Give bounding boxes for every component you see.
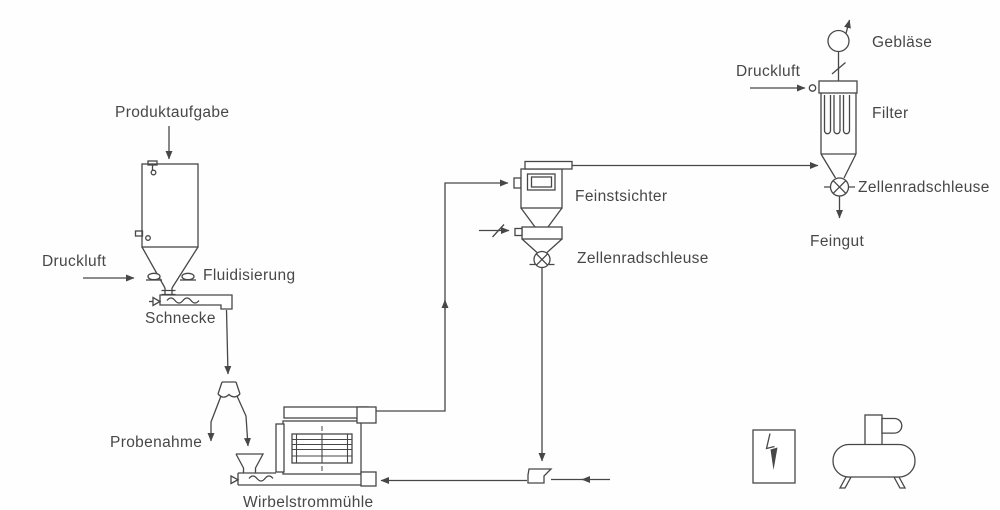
- mill-feed-squiggle: [249, 476, 273, 481]
- filter-head: [819, 81, 857, 93]
- flow-sheet-page: Produktaufgabe Druckluft Fluidisierung S…: [0, 0, 1000, 510]
- label-probenahme: Probenahme: [110, 434, 202, 451]
- screw-housing: [160, 295, 232, 309]
- mill-return-stub: [361, 472, 376, 486]
- compressor-tank: [833, 445, 915, 478]
- vortex-mill: [231, 407, 376, 486]
- compressor-head: [882, 419, 902, 434]
- fluidization-pads: [146, 273, 196, 280]
- silo-cone: [142, 247, 198, 288]
- filter-cone: [821, 154, 856, 178]
- compressor-leg-left: [840, 477, 851, 488]
- label-wirbelstrommuehle: Wirbelstrommühle: [243, 494, 374, 510]
- mill-feed-branch-line: [237, 396, 248, 446]
- label-geblaese: Gebläse: [872, 34, 932, 51]
- filter: [819, 31, 857, 197]
- label-druckluft-filter: Druckluft: [736, 63, 801, 80]
- return-injector-funnel: [528, 469, 551, 483]
- classifier-top-pipe: [525, 162, 572, 170]
- label-druckluft-silo: Druckluft: [42, 253, 107, 270]
- label-zellenradschleuse-filter: Zellenradschleuse: [858, 179, 990, 196]
- screw-to-splitter-line: [227, 310, 229, 374]
- fine-classifier: [514, 162, 572, 268]
- control-cabinet-symbol: [753, 430, 795, 483]
- label-filter: Filter: [872, 105, 909, 122]
- blower-icon: [828, 31, 849, 52]
- mill-to-classifier-line: [376, 183, 508, 411]
- classifier-lower-stub: [515, 229, 522, 236]
- compressor-pipe: [865, 415, 882, 445]
- label-feingut: Feingut: [810, 233, 864, 250]
- rotary-valve-classifier-icon: [530, 252, 555, 268]
- label-produktaufgabe: Produktaufgabe: [115, 104, 229, 121]
- silo-outlet-neck: [162, 288, 176, 295]
- compressor-symbol: [833, 415, 915, 488]
- label-feinstsichter: Feinstsichter: [575, 188, 667, 205]
- classifier-lower-cone: [522, 239, 562, 253]
- label-fluidisierung: Fluidisierung: [203, 267, 295, 284]
- label-zellenradschleuse-sichter: Zellenradschleuse: [577, 250, 709, 267]
- classifier-cone: [521, 208, 562, 227]
- mill-feed-hopper: [236, 454, 263, 473]
- sample-splitter: [218, 382, 240, 397]
- splitter-cup-scallop: [218, 394, 240, 397]
- label-schnecke: Schnecke: [145, 310, 216, 327]
- silo-body: [142, 164, 198, 247]
- flow-lines: [83, 20, 850, 481]
- splitter-cup: [218, 382, 240, 394]
- feed-silo: [136, 161, 199, 295]
- screw-motor-icon: [153, 298, 160, 306]
- filter-bags: [825, 95, 850, 134]
- filter-shell: [821, 93, 856, 154]
- air-coupling-circle: [809, 85, 815, 91]
- sampling-branch-line: [211, 396, 221, 441]
- rotary-valve-filter-icon: [824, 178, 855, 196]
- mill-outlet-stub: [357, 407, 376, 423]
- classifier-lower-box: [522, 227, 562, 239]
- mill-top-duct: [284, 407, 368, 418]
- mill-feed-motor-icon: [231, 476, 238, 484]
- mill-door-strip: [276, 424, 284, 472]
- process-flow-diagram: Produktaufgabe Druckluft Fluidisierung S…: [0, 0, 1000, 510]
- classifier-inlet-stub: [514, 178, 521, 188]
- labels: Produktaufgabe Druckluft Fluidisierung S…: [42, 34, 990, 510]
- compressor-leg-right: [894, 477, 905, 488]
- blower-exhaust-arrow: [846, 20, 850, 34]
- screw-conveyor: [149, 295, 232, 309]
